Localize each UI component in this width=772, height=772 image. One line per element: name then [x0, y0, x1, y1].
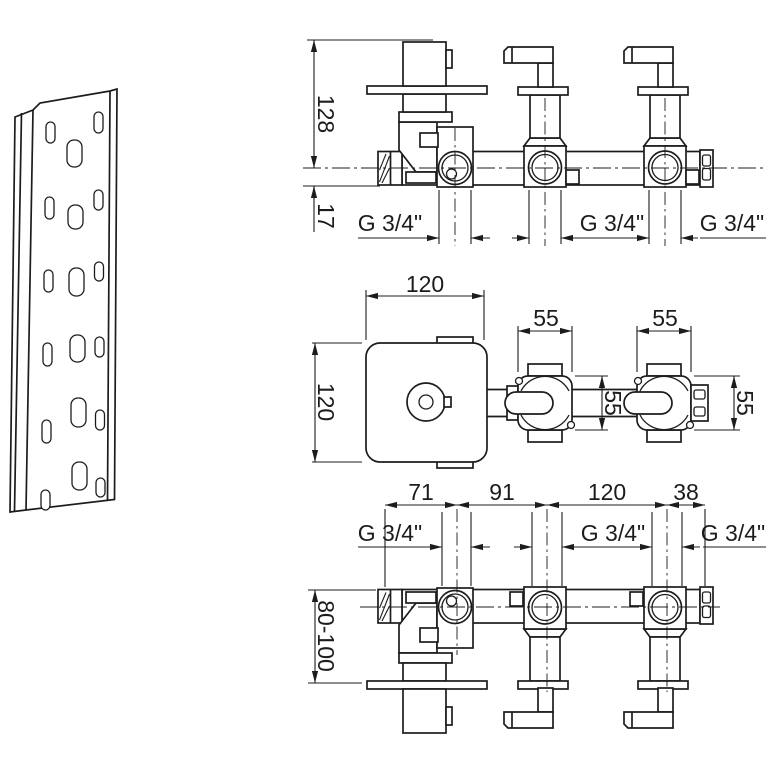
- dim-17-label: 17: [313, 203, 339, 229]
- technical-drawing-sheet: 128 17 G 3/4" G 3/4" G 3/4": [0, 0, 772, 772]
- screw: [635, 378, 642, 385]
- plan-knob-center: [419, 395, 433, 409]
- thermostat-notch: [420, 133, 438, 147]
- valve-stem: [530, 637, 560, 681]
- plan-end-cap: [691, 385, 708, 421]
- lever-plan: [505, 392, 553, 414]
- thermostat-stem: [403, 663, 446, 681]
- thermostat-foot: [406, 592, 436, 603]
- plan-knob-tab: [444, 397, 451, 407]
- back-pipe-inlet-stub: [378, 590, 402, 624]
- thermostat-foot: [406, 172, 436, 183]
- valve-escutcheon: [518, 87, 568, 95]
- valve-escutcheon: [638, 87, 688, 95]
- screw: [568, 422, 575, 429]
- lever-post: [658, 688, 673, 712]
- thermostat-collar: [399, 112, 452, 122]
- plan-width-label: 120: [406, 271, 444, 297]
- lever-post: [538, 688, 553, 712]
- thermostat-notch: [420, 628, 438, 642]
- valve-installation-drawing: 128 17 G 3/4" G 3/4" G 3/4": [0, 0, 772, 772]
- back-dim-120-label: 120: [588, 479, 626, 505]
- front-thread-label-3: G 3/4": [700, 210, 764, 236]
- valve-wings: [644, 629, 686, 637]
- valve-tab-bottom: [647, 430, 681, 442]
- back-thread-label-1: G 3/4": [358, 520, 422, 546]
- valve-tab-top: [647, 364, 681, 376]
- thermostat-escutcheon: [367, 86, 487, 94]
- valve-tab: [686, 170, 699, 184]
- screw: [687, 422, 694, 429]
- thermostat-pin: [447, 596, 457, 606]
- valve-tab: [566, 170, 579, 184]
- front-thread-label-1: G 3/4": [358, 210, 422, 236]
- thermostat-cartridge-tab: [446, 50, 452, 68]
- front-end-cap: [700, 150, 713, 187]
- back-thread-label-2: G 3/4": [581, 520, 645, 546]
- front-thread-label-2: G 3/4": [580, 210, 644, 236]
- plan-shutoff-valve-1: [505, 364, 575, 442]
- screw: [516, 378, 523, 385]
- thermostat-cartridge: [403, 689, 446, 733]
- thermostat-stem: [403, 94, 446, 112]
- valve-tab-top: [528, 364, 562, 376]
- back-dim-71-label: 71: [408, 479, 434, 505]
- front-view: 128 17 G 3/4" G 3/4" G 3/4": [303, 40, 766, 246]
- valve-tab: [510, 592, 523, 606]
- plan-cover-plate: [366, 337, 487, 468]
- mounting-plate: [10, 89, 117, 512]
- thermostat-collar: [399, 653, 452, 663]
- back-dim-91-label: 91: [489, 479, 515, 505]
- valve-wings: [524, 629, 566, 637]
- lever-post: [658, 63, 673, 87]
- valve-tab-bottom: [528, 430, 562, 442]
- plan-depth-right-label: 55: [732, 390, 758, 416]
- lever-post: [538, 63, 553, 87]
- thermostat-cartridge: [403, 42, 446, 86]
- back-dim-38-label: 38: [673, 479, 699, 505]
- thermostat-cartridge-tab: [446, 707, 452, 725]
- valve-stem: [650, 637, 680, 681]
- back-view: 71 91 120 38 G 3/4" G 3/4" G 3/4": [308, 479, 766, 733]
- plan-valve1-width-label: 55: [533, 305, 559, 331]
- plan-view: 120 120 55 55 55 55: [312, 271, 758, 468]
- back-end-cap: [700, 587, 713, 624]
- plan-depth-mid-label: 55: [600, 390, 626, 416]
- back-thread-label-3: G 3/4": [701, 520, 765, 546]
- dim-128-label: 128: [313, 95, 339, 133]
- back-depth-range-label: 80-100: [313, 600, 339, 672]
- valve-tab: [630, 592, 643, 606]
- lever-plan: [624, 392, 672, 414]
- plan-valve2-width-label: 55: [652, 305, 678, 331]
- thermostat-escutcheon: [367, 681, 487, 689]
- plan-height-label: 120: [313, 383, 339, 421]
